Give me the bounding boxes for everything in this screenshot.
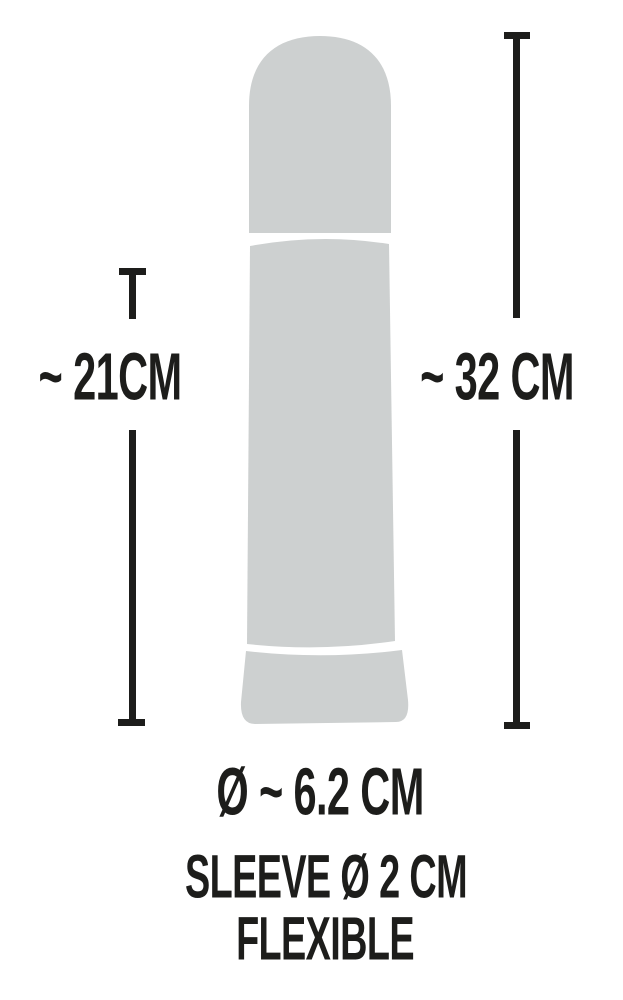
right-dimension-line-bottom-cap — [504, 722, 530, 729]
sleeve-diameter-label: SLEEVE Ø 2 CM — [185, 847, 467, 908]
left-dimension-label: ~ 21CM — [39, 344, 182, 411]
right-dimension-line-bottom-segment — [513, 430, 520, 728]
silhouette-head — [249, 36, 391, 233]
diameter-label: Ø ~ 6.2 CM — [216, 759, 423, 826]
left-dimension-line-bottom-cap — [118, 719, 145, 726]
flexible-label: FLEXIBLE — [236, 909, 414, 970]
product-dimension-diagram: ~ 21CM ~ 32 CM Ø ~ 6.2 CM SLEEVE Ø 2 CM … — [0, 0, 623, 1000]
right-dimension-line-top-segment — [513, 32, 520, 318]
left-dimension-line-bottom-segment — [129, 430, 136, 726]
left-dimension-line-top-segment — [129, 268, 136, 319]
silhouette-body — [247, 239, 395, 647]
right-dimension-label: ~ 32 CM — [420, 344, 574, 411]
silhouette-sleeve-base — [241, 650, 408, 724]
